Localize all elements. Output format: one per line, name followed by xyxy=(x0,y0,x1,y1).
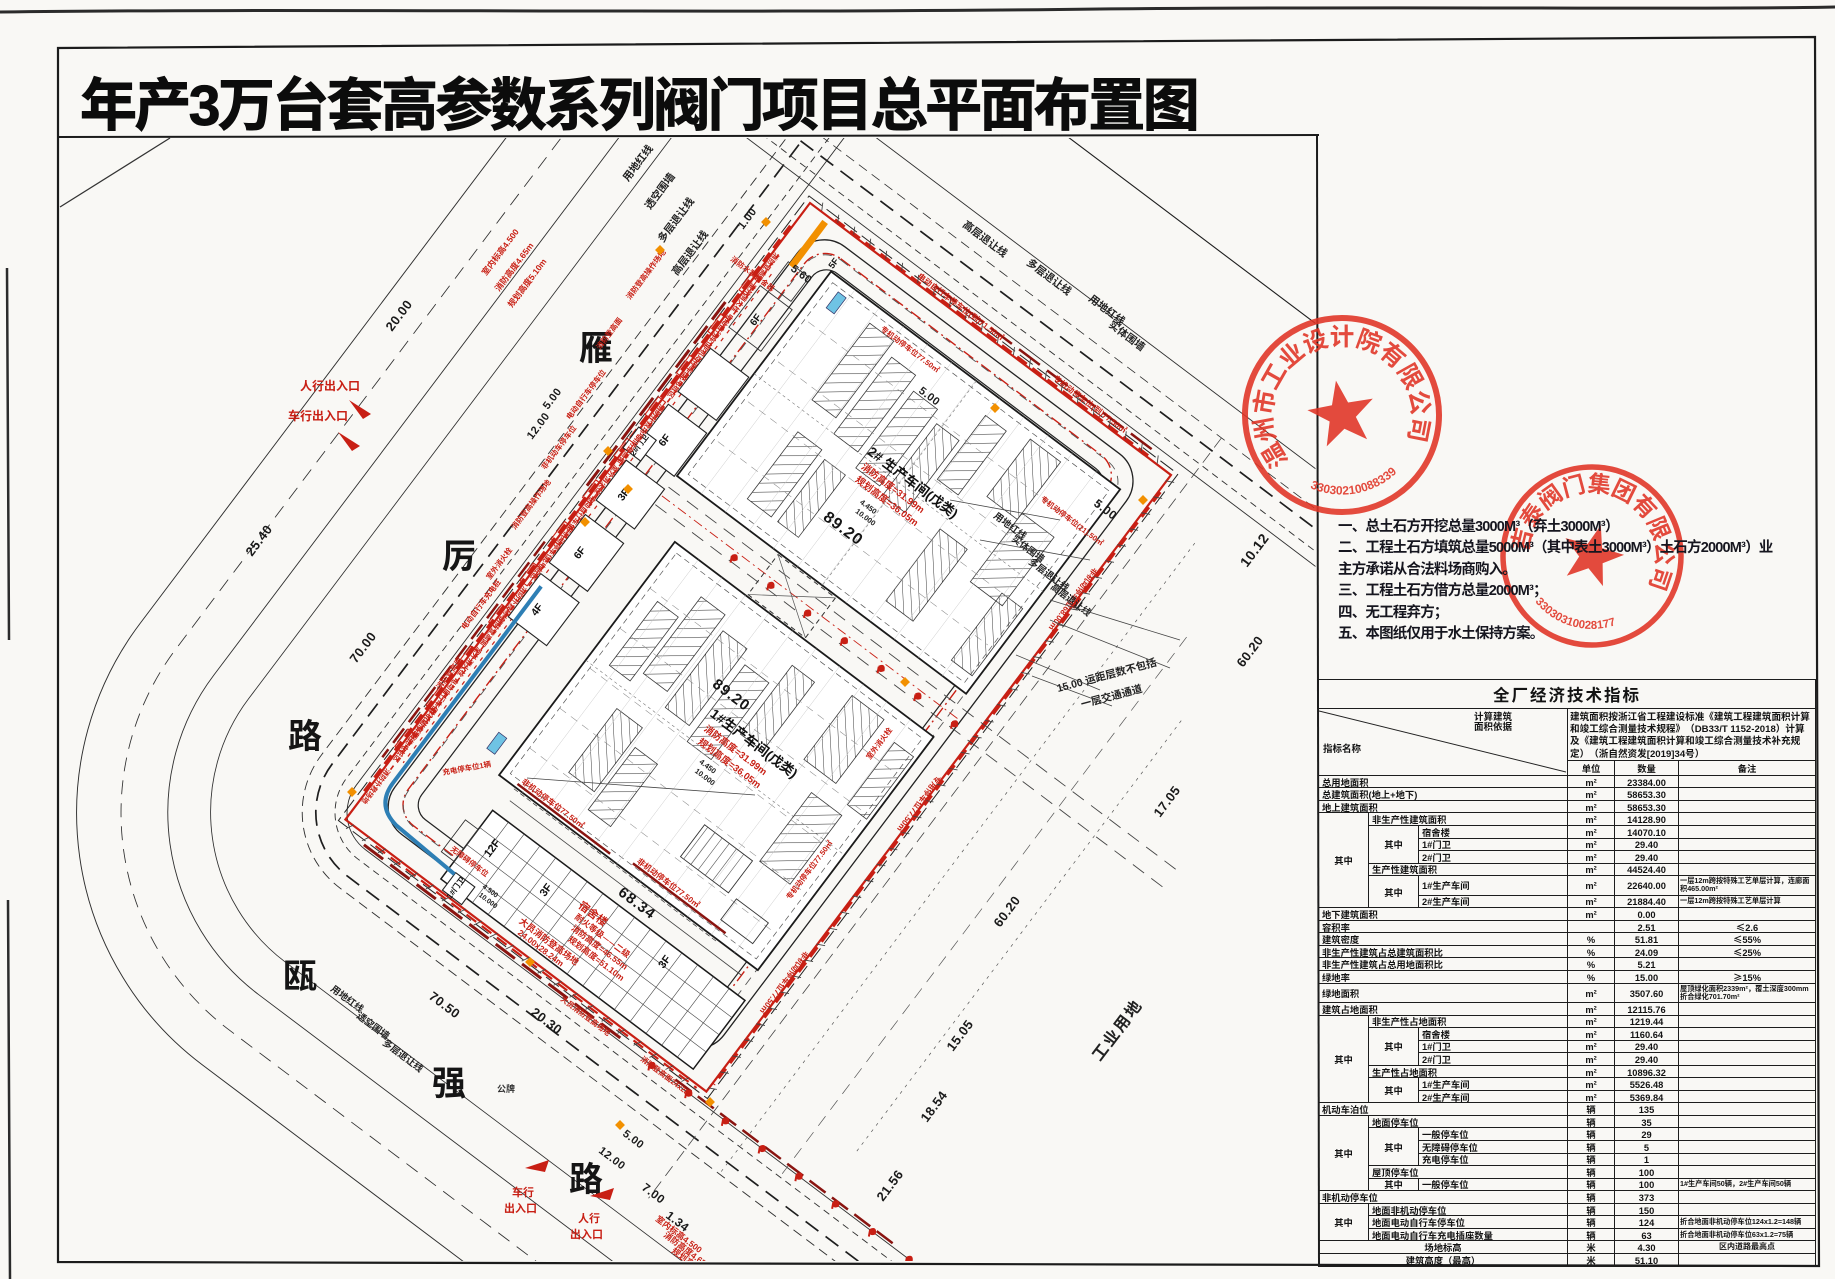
svg-text:6F: 6F xyxy=(745,310,764,328)
svg-text:电动自行车停车位(到)71.50㎡: 电动自行车停车位(到)71.50㎡ xyxy=(915,271,1006,343)
svg-text:实体围墙: 实体围墙 xyxy=(1106,317,1149,355)
svg-text:20.00: 20.00 xyxy=(380,295,416,334)
svg-text:60.20: 60.20 xyxy=(1231,631,1267,670)
svg-text:消防登高操作场地: 消防登高操作场地 xyxy=(624,247,669,302)
svg-text:电动自行车停车位: 电动自行车停车位 xyxy=(564,367,609,422)
svg-text:专用停车位77.50㎡: 专用停车位77.50㎡ xyxy=(894,773,944,834)
svg-text:10.12: 10.12 xyxy=(1235,529,1274,571)
svg-text:室外消火栓: 室外消火栓 xyxy=(484,545,516,582)
svg-text:瓯: 瓯 xyxy=(283,949,317,998)
svg-text:12.00: 12.00 xyxy=(522,409,553,443)
svg-text:车行出入口: 车行出入口 xyxy=(288,407,348,424)
svg-text:强: 强 xyxy=(432,1056,466,1105)
svg-text:透空围墙: 透空围墙 xyxy=(641,169,679,212)
svg-text:21.56: 21.56 xyxy=(871,1165,907,1204)
svg-text:出入口: 出入口 xyxy=(570,1226,603,1242)
svg-text:用地红线: 用地红线 xyxy=(619,141,657,184)
svg-text:20.30: 20.30 xyxy=(528,1002,567,1038)
svg-text:非机动车停车位: 非机动车停车位 xyxy=(539,423,580,472)
svg-text:25.40: 25.40 xyxy=(240,520,276,559)
svg-text:工业用地: 工业用地 xyxy=(1085,993,1148,1065)
svg-text:车行: 车行 xyxy=(512,1184,534,1200)
svg-text:充电停车位1辆: 充电停车位1辆 xyxy=(442,758,493,777)
svg-text:多层退让线: 多层退让线 xyxy=(1024,255,1075,299)
svg-text:专机动停车位(到)77.50㎡: 专机动停车位(到)77.50㎡ xyxy=(1051,373,1129,436)
svg-text:厉: 厉 xyxy=(442,529,476,578)
svg-text:人行: 人行 xyxy=(578,1210,600,1226)
svg-text:高层退让线: 高层退让线 xyxy=(668,227,712,278)
svg-text:60.20: 60.20 xyxy=(988,891,1024,930)
svg-text:5.00: 5.00 xyxy=(620,1125,648,1152)
svg-text:5.00: 5.00 xyxy=(538,384,565,412)
svg-text:人行出入口: 人行出入口 xyxy=(300,377,360,394)
svg-text:1.00: 1.00 xyxy=(733,204,760,232)
svg-text:路: 路 xyxy=(288,709,322,758)
svg-text:高层退让线: 高层退让线 xyxy=(960,217,1011,261)
svg-text:70.50: 70.50 xyxy=(426,986,465,1022)
svg-text:17.05: 17.05 xyxy=(1148,781,1184,820)
svg-text:7.00: 7.00 xyxy=(639,1179,669,1208)
svg-text:70.00: 70.00 xyxy=(344,627,380,666)
svg-text:消防登高操作场地: 消防登高操作场地 xyxy=(509,477,554,532)
svg-text:多层退让线: 多层退让线 xyxy=(380,1035,427,1075)
svg-text:公牌: 公牌 xyxy=(497,1082,515,1095)
svg-text:出入口: 出入口 xyxy=(504,1200,537,1216)
svg-text:18.54: 18.54 xyxy=(915,1086,951,1126)
svg-text:15.05: 15.05 xyxy=(941,1015,977,1054)
